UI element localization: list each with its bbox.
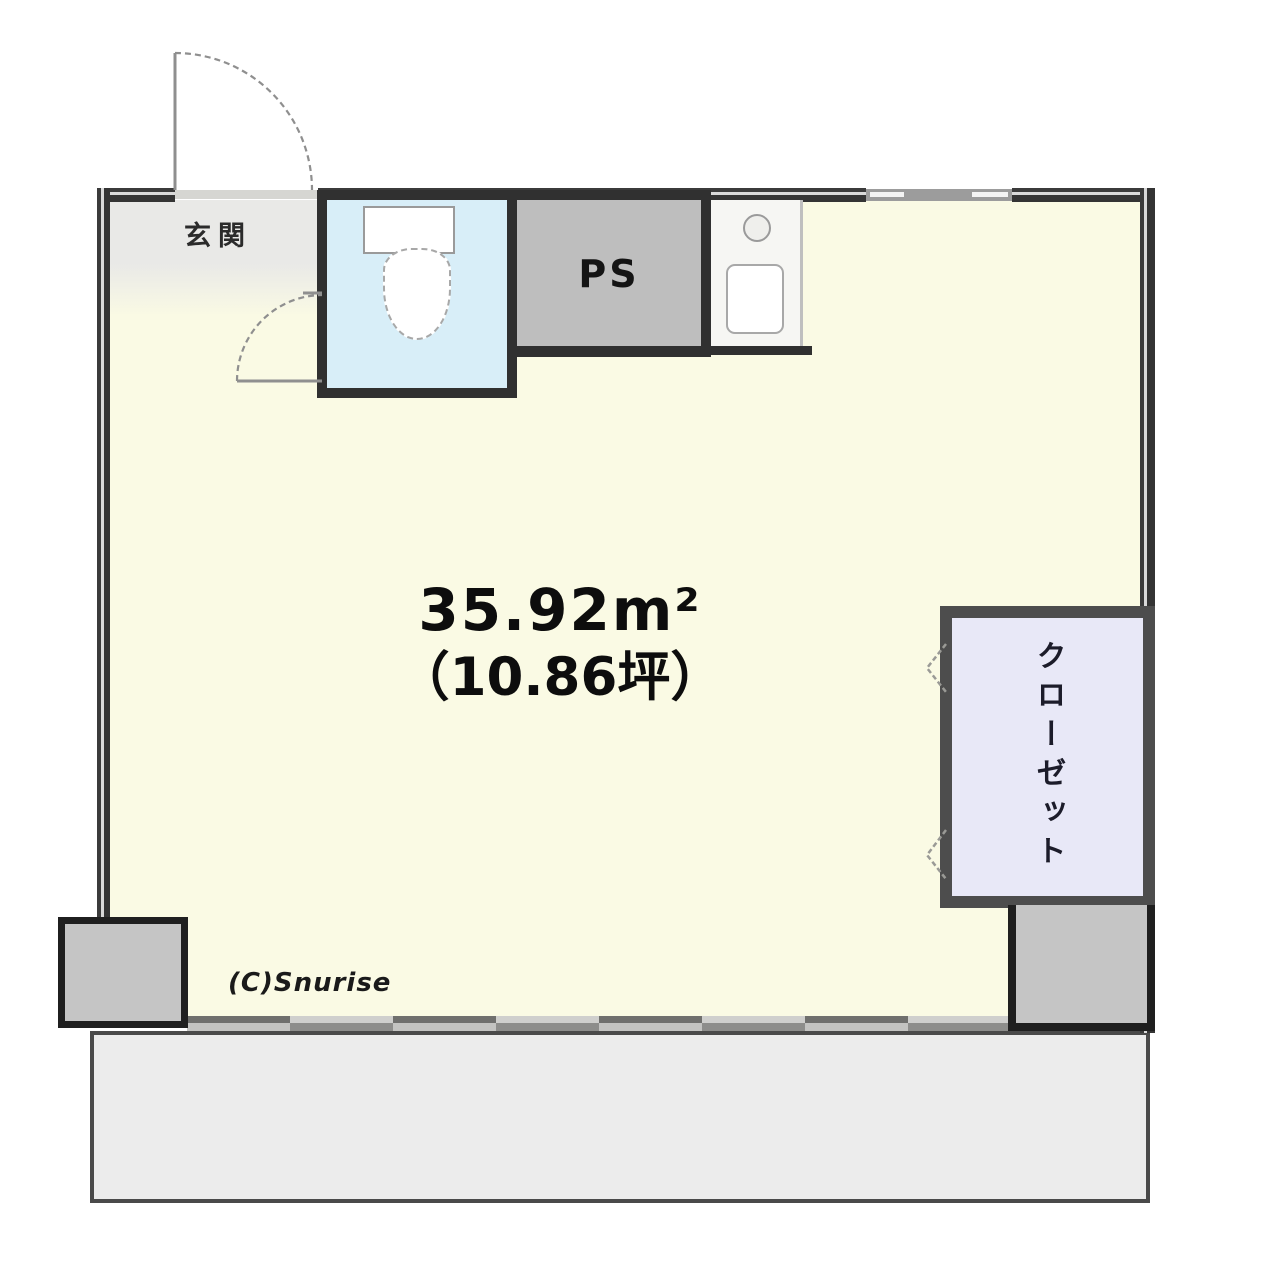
pillar-bottom-left <box>58 917 188 1028</box>
sliding-door-rail <box>187 1023 1008 1031</box>
toilet-icon <box>383 248 451 340</box>
sliding-door-rail <box>187 1016 1008 1023</box>
pipe-space: PS <box>507 190 711 357</box>
toilet-icon <box>363 206 455 254</box>
window-pane <box>870 192 904 197</box>
entrance-door-threshold <box>175 190 318 199</box>
pipe-space-label: PS <box>578 252 639 296</box>
entrance-label: 玄関 <box>150 214 286 253</box>
sink-icon <box>726 264 784 334</box>
pillar-bottom-right <box>1008 905 1155 1031</box>
toilet-room <box>317 190 517 398</box>
door-swing-arc-icon <box>175 53 312 190</box>
balcony <box>90 1031 1150 1203</box>
window-icon <box>866 189 1012 201</box>
kitchen-unit <box>711 200 803 346</box>
floorplan-canvas: PS クローゼット 玄関 35.92m² （10.86坪） <box>0 0 1280 1274</box>
wall-top-right <box>1012 188 1155 202</box>
copyright-text: (C)Snurise <box>228 968 391 998</box>
faucet-icon <box>743 214 771 242</box>
window-pane <box>972 192 1008 197</box>
sliding-door-icon <box>187 1016 1008 1031</box>
closet: クローゼット <box>940 606 1155 908</box>
closet-label: クローゼット <box>1026 640 1070 874</box>
floor-area-label: 35.92m² （10.86坪） <box>300 576 820 709</box>
counter-wall <box>507 346 812 355</box>
area-tsubo: （10.86坪） <box>300 646 820 710</box>
area-unit: m² <box>612 576 702 644</box>
wall-left <box>97 188 110 919</box>
area-value: 35.92 <box>418 576 611 644</box>
